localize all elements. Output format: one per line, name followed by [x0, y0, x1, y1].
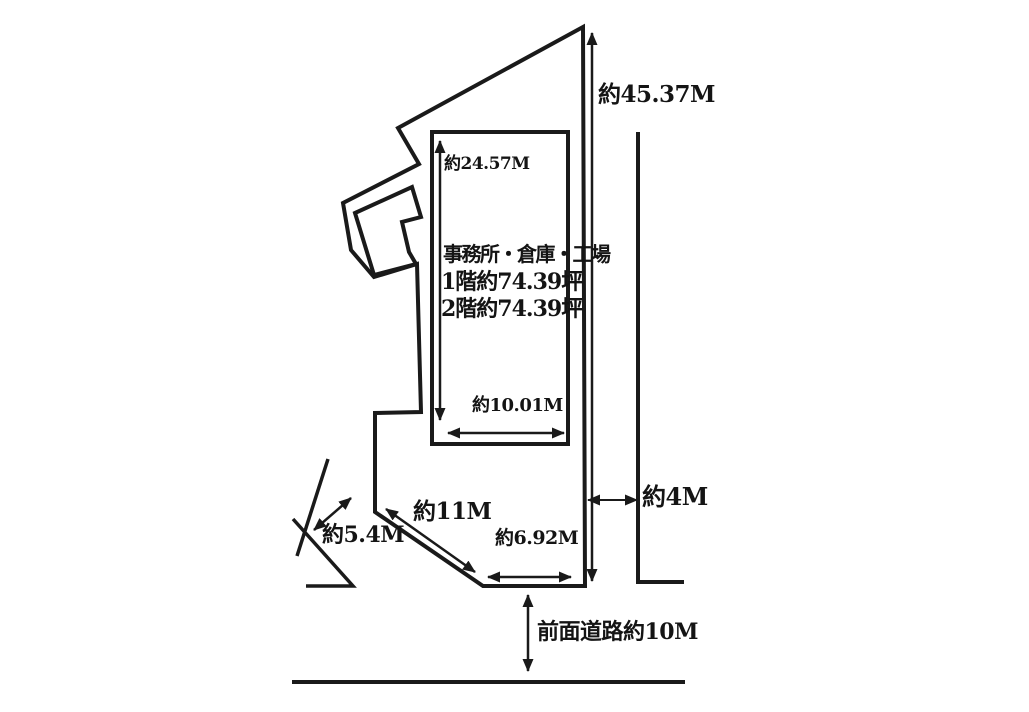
- building-floor2-area-label: 2階約74.39坪: [441, 297, 582, 321]
- frontage-dimension-label: 約6.92M: [495, 528, 578, 549]
- building-depth-dimension-label: 約24.57M: [444, 155, 530, 174]
- building-width-dimension-label: 約10.01M: [472, 396, 563, 416]
- building-name-label: 事務所・倉庫・工場: [443, 243, 610, 265]
- side-road-width-dimension-label: 約5.4M: [322, 523, 404, 547]
- right-neighbor-boundary: [638, 132, 684, 582]
- site-plan-diagram: 約45.37M 約24.57M 事務所・倉庫・工場 1階約74.39坪 2階約7…: [0, 0, 1029, 712]
- front-road-dimension-label: 前面道路約10M: [537, 620, 698, 644]
- right-side-dimension-label: 約45.37M: [598, 82, 715, 107]
- neighbor-structure-outline: [355, 187, 421, 275]
- site-plan-linework: [0, 0, 1029, 712]
- building-floor1-area-label: 1階約74.39坪: [441, 270, 582, 294]
- slant-edge-dimension-label: 約11M: [413, 499, 491, 524]
- setback-dimension-label: 約4M: [642, 484, 708, 510]
